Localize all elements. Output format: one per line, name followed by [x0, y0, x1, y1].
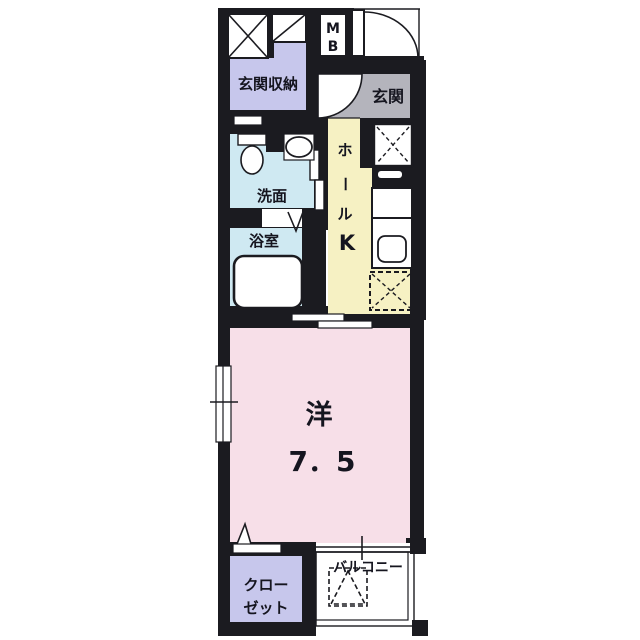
floorplan-image: 玄関収納 M B 玄関 洗面 浴室 ホ ー ル K 洋 7．5 クロー ゼット … [0, 0, 640, 640]
vent-slot [378, 171, 402, 178]
entry-door-swing-arc [364, 12, 418, 58]
closet-door-track [233, 544, 281, 553]
balcony-window-gap [316, 543, 410, 555]
wall-bath-right [302, 208, 326, 320]
kitchen-label: K [339, 231, 356, 255]
hall-label-char2: ー [336, 176, 354, 191]
entrance-label: 玄関 [372, 87, 404, 106]
sink-basin-icon [286, 137, 312, 157]
washroom-label: 洗面 [257, 187, 287, 205]
hall-label-char3: ル [337, 205, 352, 223]
room-slide-panel-1 [292, 314, 344, 321]
toilet-tank-icon [238, 134, 266, 145]
toilet-bowl-icon [241, 146, 263, 174]
closet-label-line2: ゼット [243, 599, 288, 617]
meter-box-label-b: B [328, 39, 339, 55]
western-room-size: 7．5 [289, 445, 356, 478]
entry-door-leaf [352, 10, 364, 56]
balcony-label: バルコニー [333, 560, 403, 576]
bath-door-gap [262, 209, 302, 227]
kitchen-sink-icon [378, 236, 406, 262]
wall-room-right [410, 320, 424, 548]
wall-entrance-top [306, 56, 424, 74]
bathtub-icon [234, 256, 302, 308]
storage-door-slot [234, 116, 262, 125]
wall-closet-right [302, 542, 316, 636]
closet-label-line1: クロー [243, 576, 288, 594]
wall-bottom [218, 622, 316, 636]
hall-label-char1: ホ [337, 141, 352, 159]
western-room-floor [230, 328, 410, 544]
room-slide-panel-2 [318, 321, 372, 328]
meter-box-label-m: M [326, 21, 340, 37]
entrance-storage-label: 玄関収納 [238, 75, 298, 93]
western-room-label: 洋 [306, 399, 333, 431]
kitchen-counter-upper [372, 188, 412, 218]
wall-toilet-divider [266, 134, 284, 152]
washroom-slide-panel-2 [315, 180, 324, 210]
bathroom-label: 浴室 [249, 232, 279, 250]
floorplan-svg: 玄関収納 M B 玄関 洗面 浴室 ホ ー ル K 洋 7．5 クロー ゼット … [0, 0, 640, 640]
